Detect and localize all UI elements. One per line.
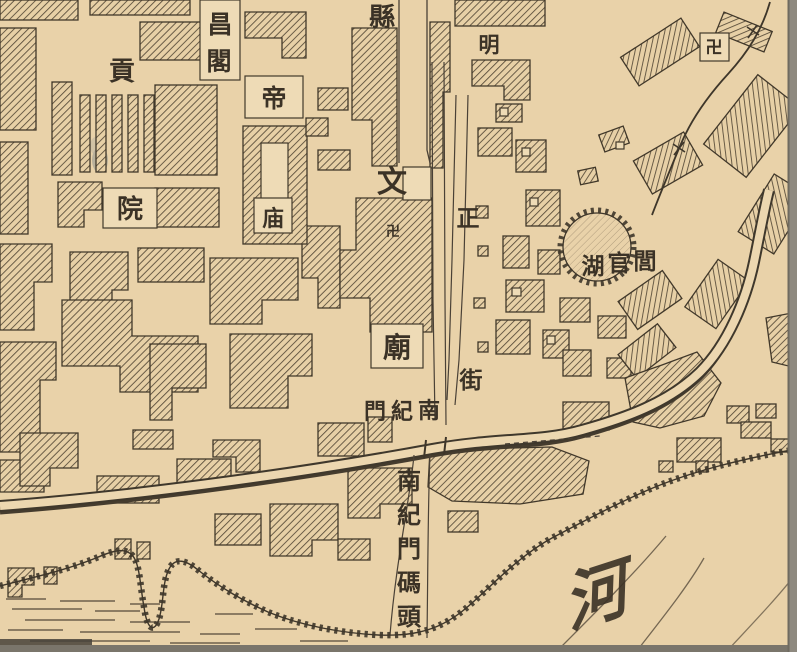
building-block (133, 430, 173, 449)
building-block (90, 0, 190, 15)
building-block (0, 142, 28, 234)
historical-city-map: 貢 院 昌 閣 帝 庙 縣 正 街 文 廟 卍 卍 明 門 紀 南 湖 官 閭 … (0, 0, 797, 652)
exam-cell-row (112, 95, 122, 172)
building-block (563, 350, 591, 376)
courtyard-small (547, 336, 555, 344)
building-block (318, 423, 364, 456)
label-nanjimen-char3: 南 (418, 398, 440, 423)
building-block (741, 422, 771, 438)
building-block (560, 298, 590, 322)
label-wenmiao-char1: 文 (377, 165, 407, 199)
building-block (478, 342, 488, 352)
label-dimiao-char2: 庙 (262, 206, 284, 231)
building-block (516, 140, 546, 172)
building-block (428, 447, 589, 504)
scan-edge-right (789, 0, 797, 652)
building-block (478, 128, 512, 156)
building-block (318, 150, 350, 170)
label-lake-char1: 湖 (582, 254, 605, 279)
label-wenchangge-char2: 閣 (206, 49, 231, 76)
building-block (538, 250, 560, 274)
label-street-xian: 縣 (369, 3, 395, 32)
building-block (677, 438, 721, 462)
label-nanjimen-char2: 紀 (391, 399, 413, 424)
building-block (448, 511, 478, 532)
manji-icon: 卍 (386, 224, 400, 240)
building-block (137, 542, 150, 559)
label-street-jie: 街 (459, 367, 483, 393)
label-wharf-char4: 碼 (397, 570, 421, 597)
label-wenmiao-char2: 廟 (383, 331, 411, 364)
building-block (727, 406, 749, 423)
building-block (526, 190, 560, 226)
scan-edge-right-line (788, 0, 790, 652)
label-wharf-char5: 頭 (397, 605, 422, 631)
building-block (496, 320, 530, 354)
label-wharf-char3: 門 (397, 537, 421, 563)
building-block (474, 298, 485, 308)
label-gongyuan-char2: 院 (117, 194, 143, 224)
building-block (52, 82, 72, 175)
label-gongyuan-char1: 貢 (109, 57, 135, 86)
label-street-zheng: 正 (457, 206, 480, 231)
courtyard-small (512, 288, 521, 296)
building-block (503, 236, 529, 268)
building-block (155, 188, 219, 227)
building-block (338, 539, 370, 560)
label-wharf-char2: 紀 (397, 501, 421, 529)
exam-cell-row (128, 95, 138, 172)
courtyard-small (616, 142, 624, 149)
building-block (138, 248, 204, 282)
building-block (0, 0, 78, 20)
building-block (598, 316, 626, 338)
label-nanjimen-char1: 門 (364, 399, 386, 424)
label-lake-char2: 官 (608, 250, 631, 276)
building-block (478, 246, 488, 256)
courtyard-small (522, 148, 530, 156)
exam-cell-row (144, 95, 154, 172)
building-block (215, 514, 261, 545)
building-block (455, 0, 545, 26)
label-wharf-char1: 南 (397, 468, 421, 495)
building-block (318, 88, 348, 110)
label-lake-char3: 閭 (634, 249, 657, 274)
label-dimiao-char1: 帝 (261, 84, 286, 113)
label-ming: 明 (479, 33, 500, 57)
exam-cell-row (80, 95, 90, 172)
building-block (659, 461, 673, 472)
building-block (0, 28, 36, 130)
map-page: 貢 院 昌 閣 帝 庙 縣 正 街 文 廟 卍 卍 明 門 紀 南 湖 官 閭 … (0, 0, 797, 652)
building-block (155, 85, 217, 175)
label-wenchangge-char1: 昌 (207, 12, 232, 39)
manji-icon: 卍 (706, 38, 723, 57)
building-block (306, 118, 328, 136)
courtyard-wen (403, 167, 431, 200)
exam-cell-row (96, 95, 106, 172)
courtyard-small (530, 198, 538, 206)
scan-edge-bottom (0, 645, 797, 652)
courtyard-small (500, 108, 508, 116)
building-block (756, 404, 776, 418)
building-block (578, 167, 599, 184)
temple-inner-hall (261, 143, 288, 201)
